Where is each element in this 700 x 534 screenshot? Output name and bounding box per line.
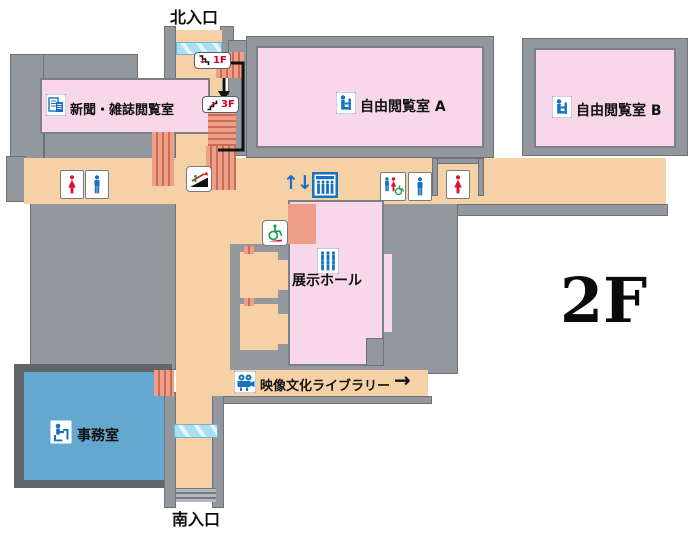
alcove-floor — [240, 304, 278, 350]
stairs-corridor-left — [152, 132, 174, 186]
wall-segment — [6, 156, 26, 202]
wall-segment — [432, 158, 438, 196]
exhibition-ramp — [288, 204, 316, 244]
stairs-up-label: 3F — [221, 100, 235, 110]
stairs-library-left — [154, 370, 174, 396]
alcove-floor — [240, 252, 278, 298]
room-newspaper-label: 新聞・雑誌閲覧室 — [70, 99, 174, 118]
newspaper-icon — [46, 94, 66, 116]
room-office-label: 事務室 — [77, 425, 119, 445]
south-entrance-steps — [176, 488, 216, 502]
male-toilet-icon — [85, 170, 109, 199]
right-arrow-icon: → — [394, 368, 411, 392]
wall-south-shaft-left — [164, 392, 176, 508]
male-toilet-icon — [408, 172, 432, 201]
room-reading-a-label: 自由閲覧室 A — [360, 96, 446, 116]
elevator-updown-arrows: ↑↓ — [283, 172, 311, 194]
north-entrance-label: 北入口 — [170, 4, 218, 28]
wall-segment — [432, 158, 482, 164]
multipurpose-toilet-icon — [380, 172, 406, 201]
floor-label: 2F — [560, 264, 647, 337]
corridor-horizontal — [24, 158, 666, 204]
stairs-up-icon — [206, 98, 219, 111]
female-toilet-icon — [446, 170, 470, 199]
south-entrance-label: 南入口 — [172, 506, 220, 530]
female-toilet-icon — [60, 170, 84, 199]
wall-segment — [222, 396, 432, 404]
wall-hall-notch — [366, 338, 384, 366]
reading-person-icon — [552, 96, 572, 118]
stairs-small — [244, 298, 254, 306]
reading-person-icon — [336, 92, 356, 114]
floor-map: 1F 3F ↑↓ — [0, 0, 700, 534]
alcove-floor — [278, 314, 288, 344]
stairs-up-sign: 3F — [202, 96, 239, 113]
wall-segment — [10, 54, 44, 162]
south-entrance-glass — [174, 424, 218, 438]
wheelchair-ramp-icon — [262, 220, 288, 246]
escalator-icon — [186, 166, 212, 192]
room-av-library-label: 映像文化ライブラリー — [260, 375, 390, 394]
stairs-small — [244, 246, 254, 254]
office-desk-icon — [50, 420, 72, 444]
alcove-floor — [278, 260, 288, 290]
south-shaft-floor — [176, 396, 212, 500]
room-reading-b-label: 自由閲覧室 B — [576, 100, 662, 120]
elevator-icon — [312, 172, 338, 198]
wall-segment — [478, 158, 484, 196]
room-exhibition-hall-bump — [384, 254, 392, 332]
stairs-down-sign: 1F — [194, 52, 231, 69]
film-projector-icon — [234, 371, 256, 393]
stairs-down-label: 1F — [213, 56, 227, 66]
wall-left-block — [30, 196, 176, 370]
room-exhibition-label: 展示ホール — [292, 270, 362, 290]
stairs-down-icon — [198, 54, 211, 67]
